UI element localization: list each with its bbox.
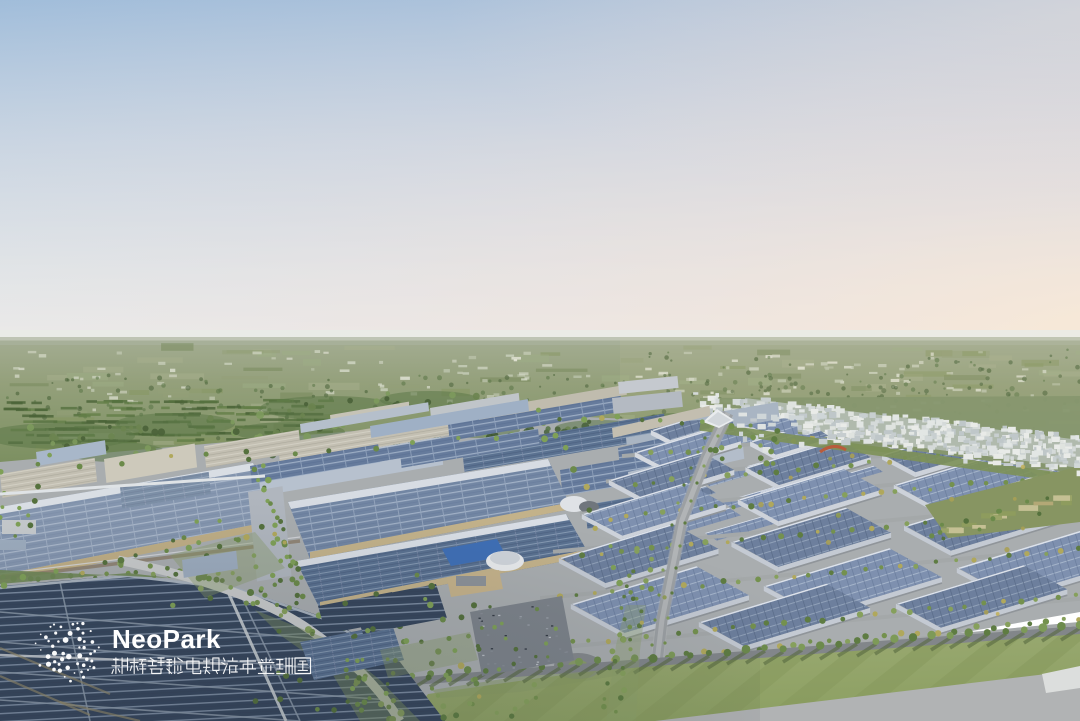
svg-text:NeoPark: NeoPark	[112, 624, 221, 654]
